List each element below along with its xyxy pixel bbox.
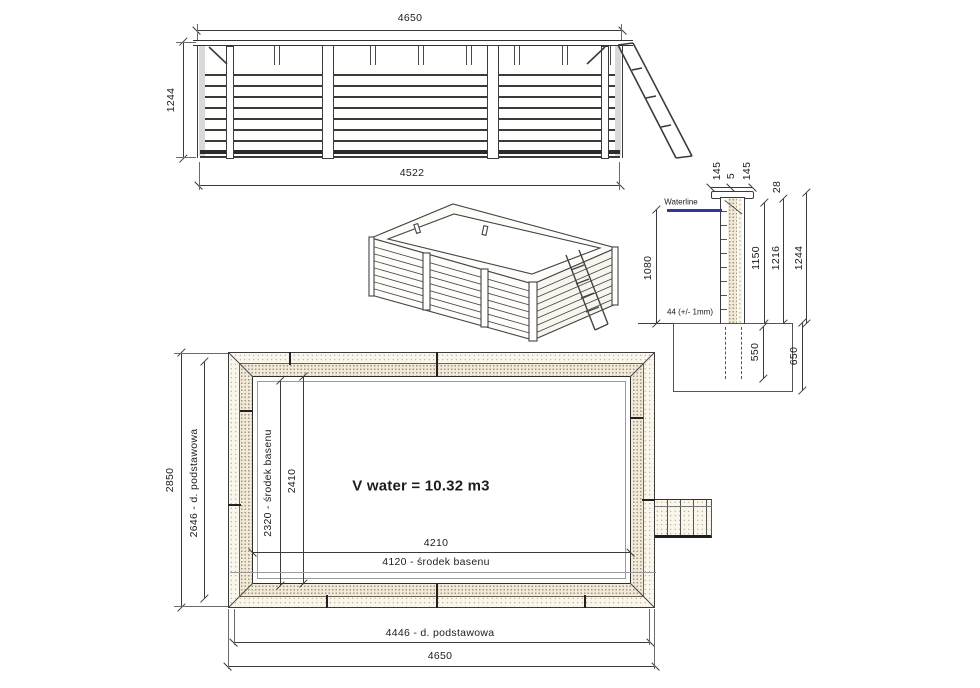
plan-overall-width-line	[228, 666, 655, 667]
plan-base-width-line	[234, 642, 650, 643]
section-foundation-depth-line	[802, 323, 803, 390]
section-post-embed-line	[763, 327, 764, 378]
section-total-height-label: 1244	[793, 246, 805, 271]
waterline-line	[667, 209, 722, 212]
plan-center-depth-line	[280, 381, 281, 585]
section-inner-height-line	[783, 199, 784, 323]
elevation-bottom-dim-label: 4522	[400, 167, 425, 179]
elevation-bottom-dim-line	[199, 185, 620, 186]
section-water-depth-label: 1080	[642, 256, 654, 281]
section-cap-inner-label: 145	[741, 162, 753, 180]
section-wall-height-label: 1150	[750, 246, 762, 270]
plan-overall-depth-line	[181, 353, 182, 607]
section-cap-gap-label: 5	[725, 173, 737, 179]
section-water-depth-line	[656, 210, 657, 323]
elevation-top-dim-line	[197, 30, 622, 31]
pool-technical-drawing: 4650	[0, 0, 980, 688]
isometric-view	[363, 192, 625, 342]
section-post-embed-label: 550	[749, 343, 761, 361]
elevation-ladder	[195, 38, 705, 166]
plan-center-width-line	[230, 572, 656, 573]
section-wall	[720, 197, 745, 332]
waterline-label: Waterline	[664, 198, 698, 207]
elevation-height-dim-label: 1244	[165, 88, 177, 113]
section-rim-offset-label: 28	[771, 181, 783, 193]
plan-inner-depth-label: 2410	[286, 469, 298, 494]
buried-post	[725, 327, 742, 379]
section-inner-height-label: 1216	[770, 246, 782, 271]
plan-base-depth-line	[204, 362, 205, 598]
plan-center-width-label: 4120 - środek basenu	[382, 556, 490, 568]
plan-inner-width-label: 4210	[424, 537, 449, 549]
section-cap-outer-label: 145	[711, 162, 723, 180]
plan-base-width-label: 4446 - d. podstawowa	[386, 627, 495, 639]
section-wall-height-line	[764, 203, 765, 323]
section-total-height-line	[806, 193, 807, 323]
plan-ladder	[655, 499, 712, 538]
plan-base-depth-label: 2646 - d. podstawowa	[188, 429, 200, 538]
plan-overall-width-label: 4650	[428, 650, 453, 662]
section-foundation-depth-label: 650	[788, 347, 800, 365]
plan-overall-depth-label: 2850	[164, 468, 176, 493]
volume-label: V water = 10.32 m3	[352, 478, 489, 495]
plan-center-depth-label: 2320 - środek basenu	[262, 429, 274, 537]
plan-inner-width-line	[253, 552, 630, 553]
elevation-top-dim-label: 4650	[398, 12, 423, 24]
elevation-height-dim-line	[183, 42, 184, 158]
section-wall-thickness-label: 44 (+/- 1mm)	[667, 308, 713, 317]
